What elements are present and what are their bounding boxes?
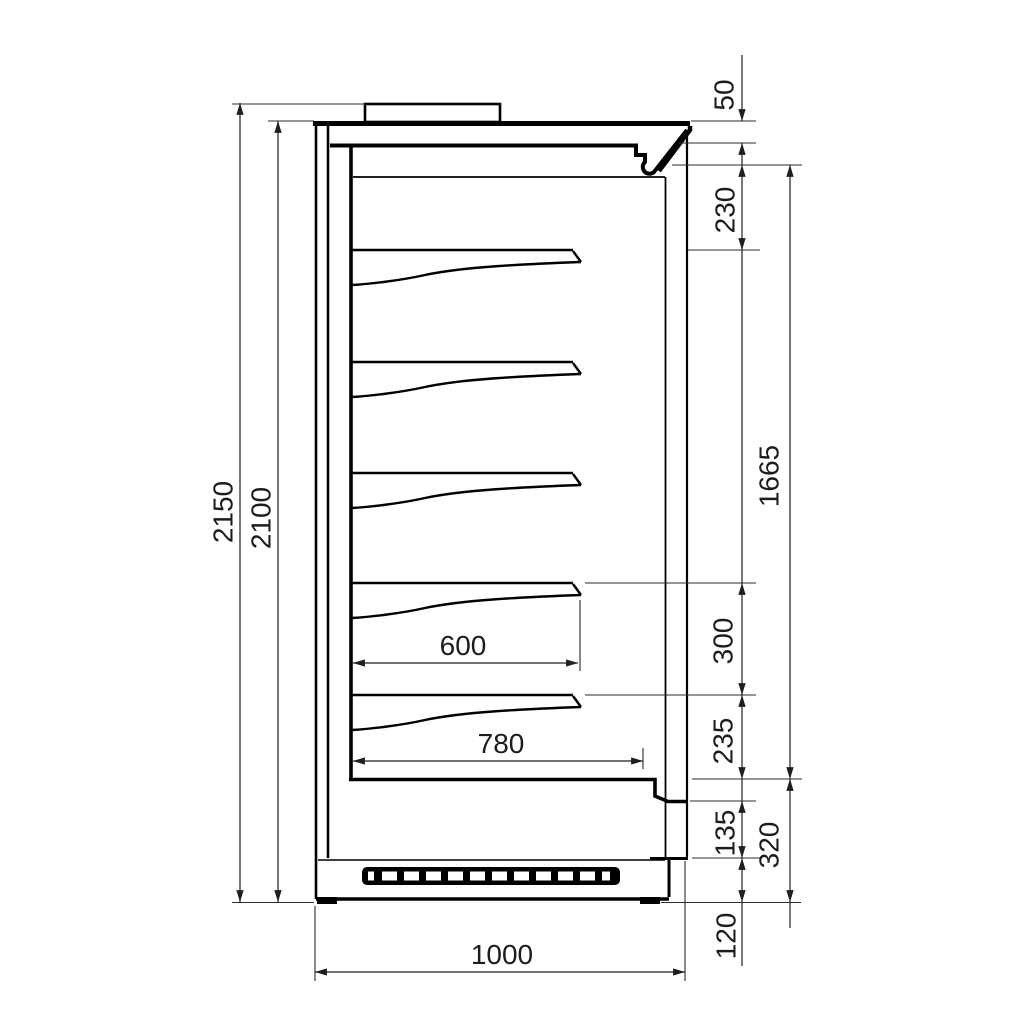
shelf-3 — [351, 473, 581, 508]
dimension-lines — [240, 55, 790, 972]
dim-canopy-label: 50 — [708, 79, 739, 110]
foot-right — [640, 897, 660, 904]
bottom-deck — [349, 780, 686, 802]
dim-top-clearance-label: 230 — [709, 187, 740, 234]
back-wall — [316, 122, 351, 899]
dim-opening-label: 1665 — [753, 445, 784, 507]
dim-shelf-depth-label: 600 — [440, 630, 487, 661]
canopy — [313, 104, 690, 174]
dim-interior-depth-label: 780 — [478, 728, 525, 759]
air-grille — [362, 867, 620, 885]
cabinet-body — [313, 104, 690, 904]
air-duct-hook — [330, 130, 687, 174]
shelf-5 — [351, 695, 581, 730]
dim-cabinet-height-label: 2100 — [245, 487, 276, 549]
dim-overall-depth-label: 1000 — [471, 939, 533, 970]
dimension-labels: 2150 2100 50 230 1665 300 235 135 320 12… — [207, 79, 784, 970]
dim-bottom-clearance-label: 235 — [707, 718, 738, 765]
dim-shelf-spacing-label: 300 — [707, 618, 738, 665]
dim-overall-height-label: 2150 — [207, 481, 238, 543]
dim-base-section-label: 320 — [753, 822, 784, 869]
technical-drawing: 2150 2100 50 230 1665 300 235 135 320 12… — [0, 0, 1024, 1024]
shelf-1 — [351, 250, 581, 285]
top-box — [365, 104, 500, 122]
drawing-page: 2150 2100 50 230 1665 300 235 135 320 12… — [0, 0, 1024, 1024]
foot-left — [317, 897, 337, 904]
dim-front-panel-label: 135 — [709, 810, 740, 857]
base-plinth — [316, 859, 688, 905]
shelf-4 — [351, 583, 581, 618]
shelf-2 — [351, 362, 581, 397]
dim-plinth-label: 120 — [710, 913, 741, 960]
